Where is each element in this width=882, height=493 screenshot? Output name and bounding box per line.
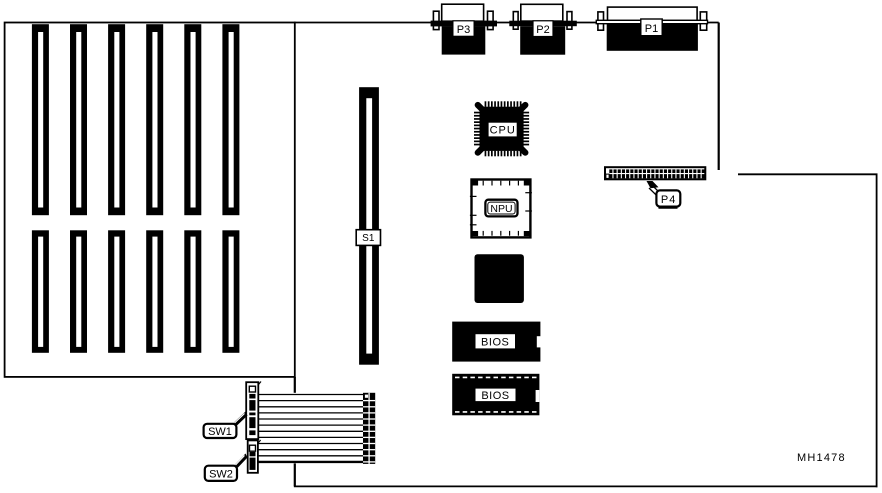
svg-text:BIOS: BIOS bbox=[481, 390, 509, 402]
svg-text:CPU: CPU bbox=[490, 125, 516, 137]
svg-text:SW2: SW2 bbox=[209, 468, 233, 480]
svg-text:MH1478: MH1478 bbox=[797, 452, 846, 464]
svg-text:P2: P2 bbox=[536, 24, 549, 36]
svg-text:BIOS: BIOS bbox=[481, 337, 509, 349]
svg-text:P3: P3 bbox=[457, 24, 470, 36]
svg-text:S1: S1 bbox=[362, 233, 375, 244]
svg-text:NPU: NPU bbox=[490, 203, 512, 215]
svg-text:P1: P1 bbox=[645, 23, 658, 35]
svg-text:P4: P4 bbox=[661, 194, 676, 206]
svg-text:SW1: SW1 bbox=[208, 426, 232, 438]
